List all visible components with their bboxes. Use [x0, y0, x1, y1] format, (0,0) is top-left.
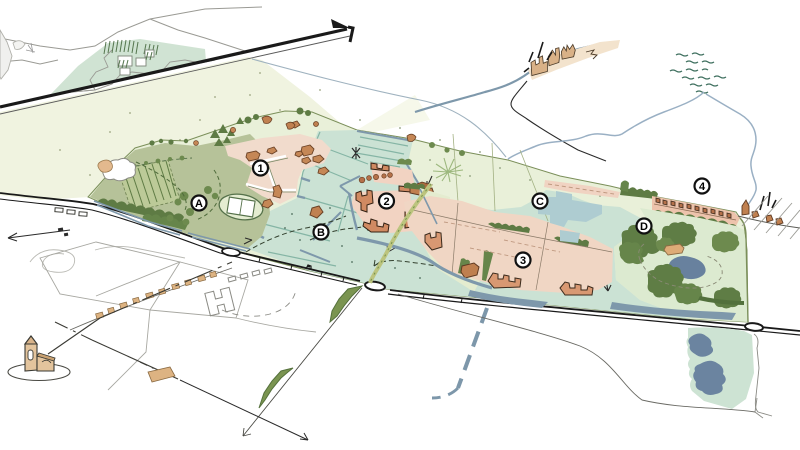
svg-text:2: 2 [383, 196, 389, 208]
svg-text:A: A [195, 198, 203, 210]
svg-text:1: 1 [257, 163, 263, 175]
svg-text:3: 3 [520, 255, 526, 267]
svg-text:B: B [317, 227, 325, 239]
svg-text:C: C [536, 196, 544, 208]
svg-text:D: D [640, 221, 648, 233]
svg-text:4: 4 [699, 181, 706, 193]
